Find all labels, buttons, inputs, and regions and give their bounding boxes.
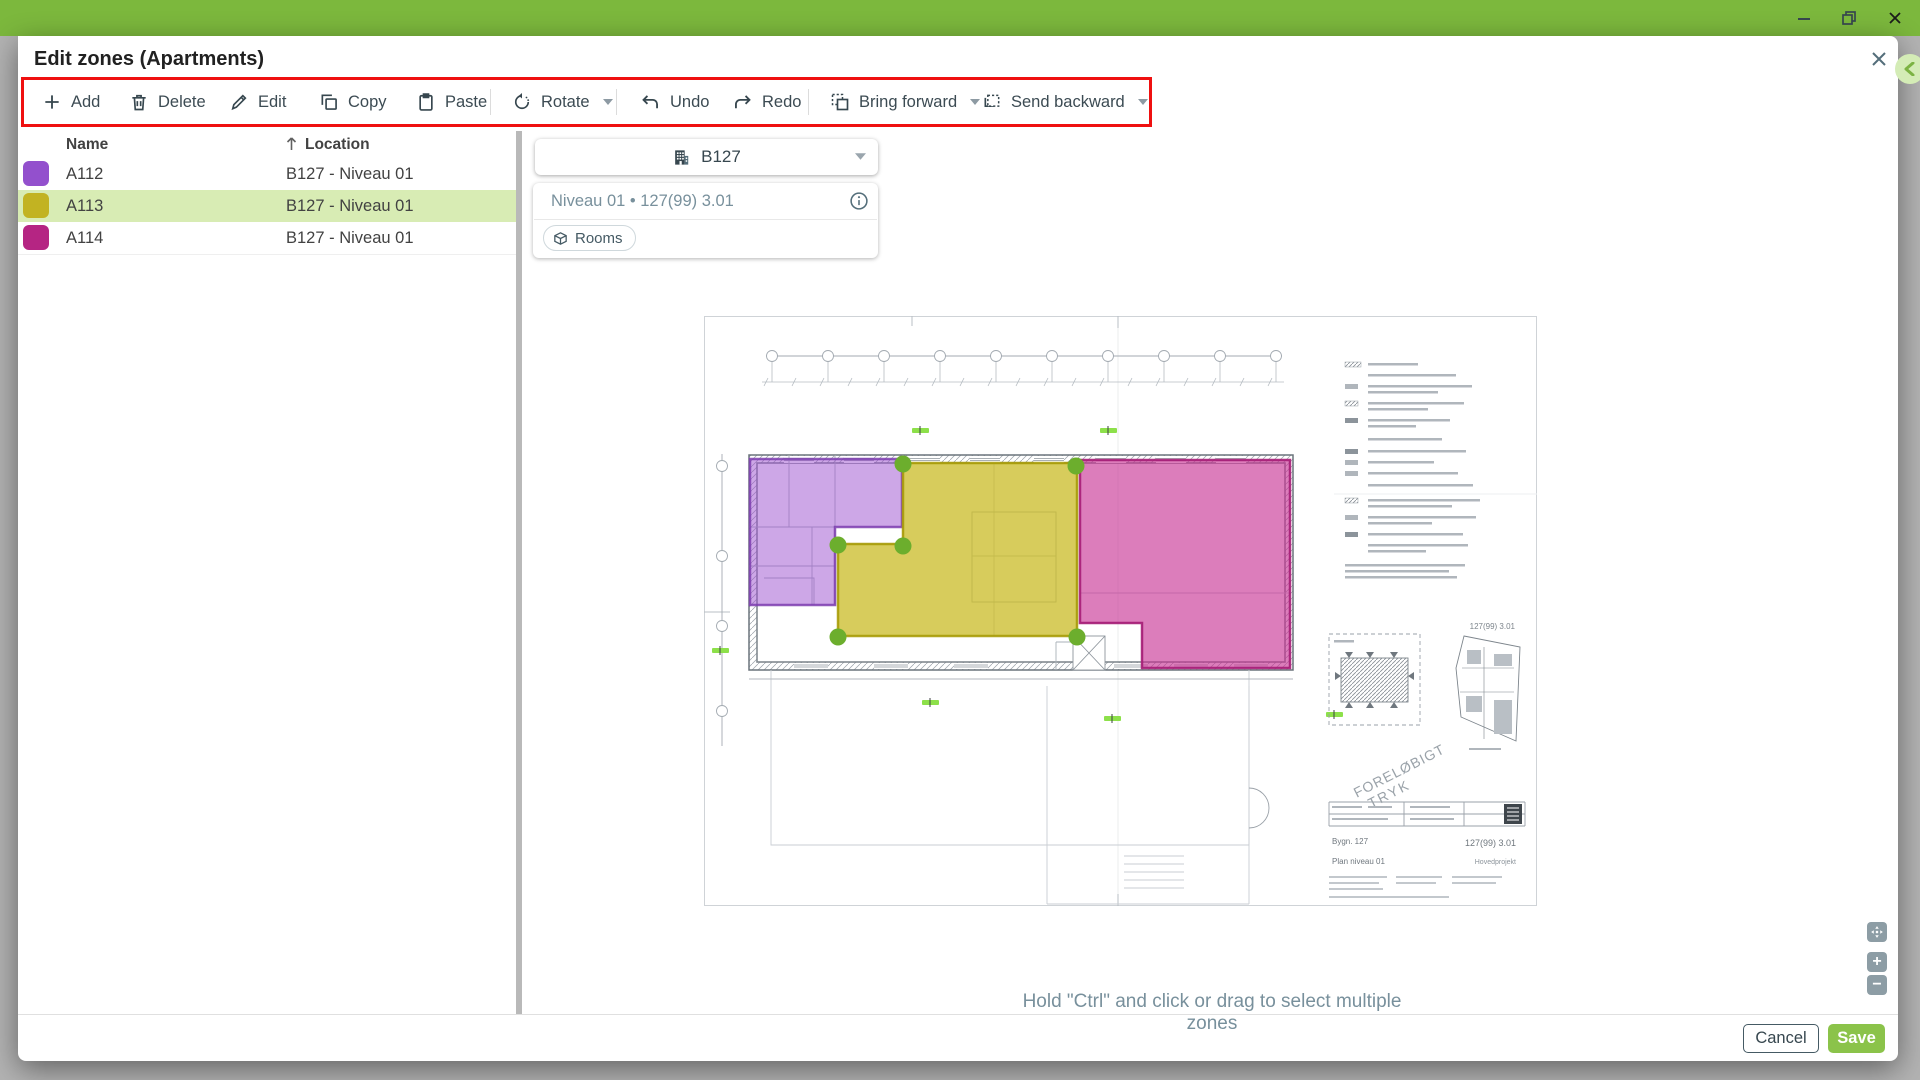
title-block-plan: Plan niveau 01 <box>1332 857 1385 866</box>
redo-icon <box>732 92 753 113</box>
zone-list-panel: Name Location A112 B127 - Niveau 01 A113… <box>18 131 516 1014</box>
arrow-left-icon <box>1903 62 1917 76</box>
zone-toolbar: Add Delete Edit Copy Paste <box>21 77 1152 127</box>
close-icon <box>1869 49 1889 69</box>
dialog-close-button[interactable] <box>1864 44 1894 74</box>
send-backward-dropdown-caret[interactable] <box>1138 99 1148 105</box>
paste-button[interactable]: Paste <box>416 80 487 124</box>
zone-location: B127 - Niveau 01 <box>286 229 414 248</box>
zone-handle[interactable] <box>1069 629 1086 646</box>
window-restore-button[interactable] <box>1832 0 1866 36</box>
send-backward-icon <box>982 92 1002 112</box>
column-header-name[interactable]: Name <box>66 136 108 154</box>
building-selector-value: B127 <box>701 147 741 167</box>
undo-label: Undo <box>670 93 709 112</box>
zone-handle[interactable] <box>895 538 912 555</box>
pencil-icon <box>229 92 249 112</box>
zone-table-header: Name Location <box>18 131 516 159</box>
trash-icon <box>129 92 149 112</box>
window-close-button[interactable] <box>1878 0 1912 36</box>
copy-label: Copy <box>348 93 387 112</box>
send-backward-label: Send backward <box>1011 93 1125 112</box>
chevron-down-icon <box>970 99 980 105</box>
minimize-icon <box>1796 10 1812 26</box>
clipboard-icon <box>416 92 436 112</box>
edit-label: Edit <box>258 93 286 112</box>
title-block-number: 127(99) 3.01 <box>1465 838 1516 848</box>
restore-icon <box>1841 10 1857 26</box>
level-card: Niveau 01 • 127(99) 3.01 Rooms <box>533 183 878 258</box>
toolbar-separator <box>490 89 491 115</box>
copy-icon <box>319 92 339 112</box>
chevron-down-icon <box>855 153 866 160</box>
bring-forward-button[interactable]: Bring forward <box>830 80 980 124</box>
level-label: Niveau 01 • 127(99) 3.01 <box>551 192 734 211</box>
panel-divider[interactable] <box>516 131 522 1014</box>
zone-name: A114 <box>66 229 103 248</box>
zone-color-swatch <box>23 225 49 250</box>
screen: Edit zones (Apartments) Add Delete Edit … <box>0 0 1920 1080</box>
title-block-type: Hovedprojekt <box>1475 859 1516 866</box>
close-icon <box>1887 10 1903 26</box>
add-label: Add <box>71 93 100 112</box>
sort-ascending-icon <box>285 136 298 152</box>
add-button[interactable]: Add <box>42 80 100 124</box>
fit-view-button[interactable] <box>1867 922 1887 942</box>
save-button[interactable]: Save <box>1828 1024 1885 1053</box>
zone-handle[interactable] <box>830 537 847 554</box>
zoom-out-button[interactable]: − <box>1867 975 1887 995</box>
copy-button[interactable]: Copy <box>319 80 387 124</box>
zone-color-swatch <box>23 161 49 186</box>
undo-icon <box>640 92 661 113</box>
zone-row-a114[interactable]: A114 B127 - Niveau 01 <box>18 222 516 255</box>
zoom-in-button[interactable]: + <box>1867 952 1887 972</box>
zone-color-swatch <box>23 193 49 218</box>
zone-row-a113-selected[interactable]: A113 B127 - Niveau 01 <box>18 190 516 223</box>
rotate-button[interactable]: Rotate <box>512 80 613 124</box>
rotate-dropdown-caret[interactable] <box>603 99 613 105</box>
undo-button[interactable]: Undo <box>640 80 709 124</box>
redo-label: Redo <box>762 93 801 112</box>
dialog-title: Edit zones (Apartments) <box>34 48 264 71</box>
rooms-chip[interactable]: Rooms <box>543 225 636 251</box>
zone-name: A112 <box>66 165 103 184</box>
cancel-button[interactable]: Cancel <box>1743 1024 1819 1053</box>
toolbar-separator <box>808 89 809 115</box>
column-header-location[interactable]: Location <box>305 136 370 154</box>
zone-handle[interactable] <box>830 629 847 646</box>
chevron-down-icon <box>1138 99 1148 105</box>
helper-arrow-bubble[interactable] <box>1895 54 1920 84</box>
redo-button[interactable]: Redo <box>732 80 801 124</box>
zone-handle[interactable] <box>1068 458 1085 475</box>
building-dropdown-caret <box>855 153 866 160</box>
rooms-chip-label: Rooms <box>575 230 623 247</box>
footer-divider <box>18 1014 1898 1015</box>
floor-plan-svg[interactable]: 127(99) 3.01 FORELØBIGT <box>704 316 1537 906</box>
pan-icon <box>1870 925 1884 939</box>
paste-label: Paste <box>445 93 487 112</box>
card-divider <box>534 219 877 220</box>
chevron-down-icon <box>603 99 613 105</box>
send-backward-button[interactable]: Send backward <box>982 80 1148 124</box>
building-selector-dropdown[interactable]: B127 <box>535 139 878 175</box>
window-minimize-button[interactable] <box>1787 0 1821 36</box>
zone-handle[interactable] <box>895 456 912 473</box>
edit-zones-dialog: Edit zones (Apartments) Add Delete Edit … <box>18 36 1898 1061</box>
edit-button[interactable]: Edit <box>229 80 286 124</box>
drawing-number-margin: 127(99) 3.01 <box>1470 622 1516 631</box>
zone-row-a112[interactable]: A112 B127 - Niveau 01 <box>18 158 516 191</box>
info-icon[interactable] <box>848 190 870 212</box>
plus-icon <box>42 92 62 112</box>
zone-location: B127 - Niveau 01 <box>286 165 414 184</box>
rotate-label: Rotate <box>541 93 590 112</box>
title-block-building: Bygn. 127 <box>1332 837 1369 846</box>
zone-location: B127 - Niveau 01 <box>286 197 414 216</box>
zone-name: A113 <box>66 197 103 216</box>
window-titlebar <box>0 0 1920 36</box>
building-icon <box>672 148 691 167</box>
delete-button[interactable]: Delete <box>129 80 206 124</box>
multi-select-hint: Hold "Ctrl" and click or drag to select … <box>1012 991 1412 1035</box>
bring-forward-label: Bring forward <box>859 93 957 112</box>
delete-label: Delete <box>158 93 206 112</box>
toolbar-separator <box>616 89 617 115</box>
rotate-icon <box>512 92 532 112</box>
room-box-icon <box>552 230 569 247</box>
floor-plan-canvas[interactable]: 127(99) 3.01 FORELØBIGT <box>704 316 1537 906</box>
bring-forward-icon <box>830 92 850 112</box>
bring-forward-dropdown-caret[interactable] <box>970 99 980 105</box>
